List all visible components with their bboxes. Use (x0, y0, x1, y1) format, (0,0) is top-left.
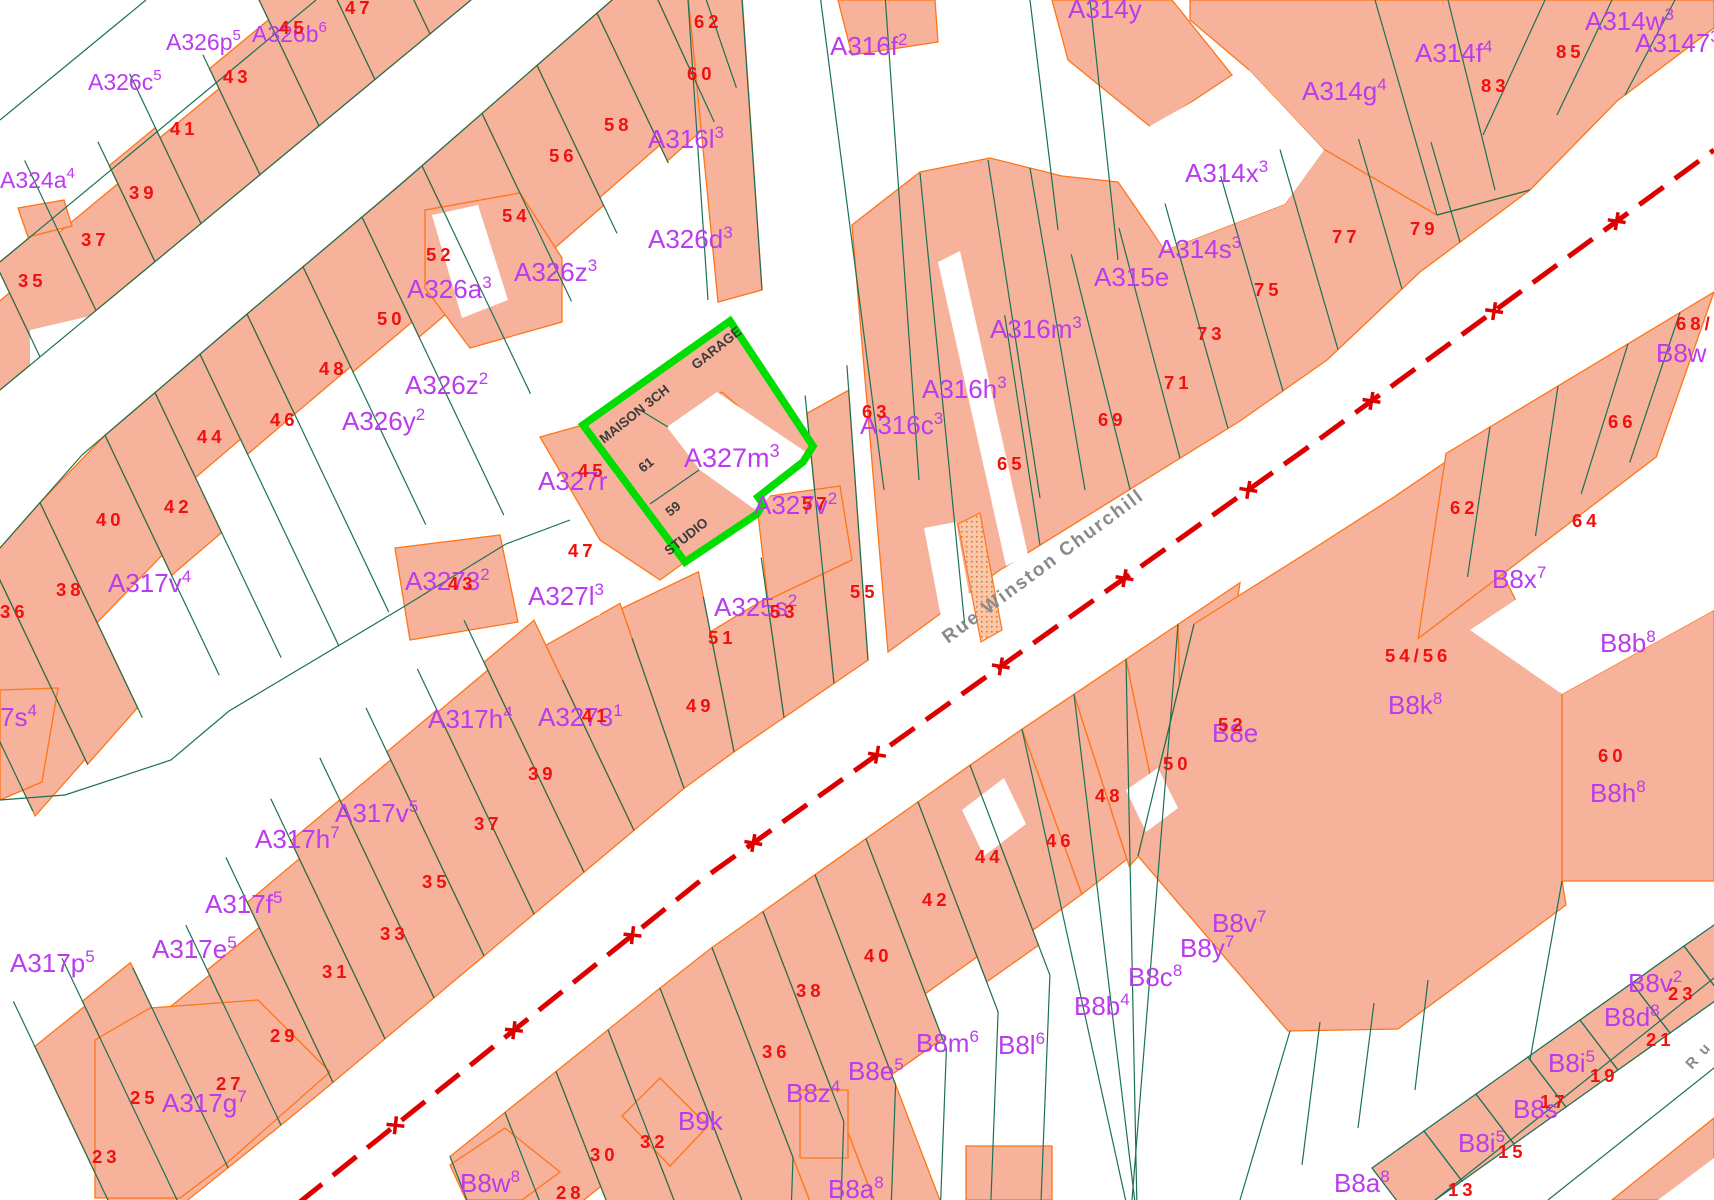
svg-text:A324a4: A324a4 (0, 165, 75, 193)
svg-text:A326z2: A326z2 (405, 369, 488, 400)
svg-text:66: 66 (1608, 411, 1637, 432)
svg-text:37: 37 (474, 813, 503, 834)
svg-text:15: 15 (1498, 1141, 1527, 1162)
svg-text:77: 77 (1332, 226, 1361, 247)
svg-text:56: 56 (549, 145, 578, 166)
svg-text:51: 51 (708, 627, 737, 648)
svg-text:A317v5: A317v5 (335, 797, 418, 828)
svg-text:50: 50 (377, 308, 406, 329)
svg-text:64: 64 (1572, 510, 1601, 531)
svg-text:A317e5: A317e5 (152, 933, 237, 964)
svg-text:46: 46 (270, 409, 299, 430)
svg-text:43: 43 (448, 573, 477, 594)
svg-text:44: 44 (975, 846, 1004, 867)
svg-text:54: 54 (502, 205, 531, 226)
svg-text:A326z3: A326z3 (514, 256, 597, 287)
svg-text:A327m3: A327m3 (684, 441, 780, 473)
svg-text:73: 73 (1197, 323, 1226, 344)
svg-text:A317f5: A317f5 (205, 888, 282, 919)
svg-text:A326a3: A326a3 (407, 273, 492, 304)
svg-text:A326y2: A326y2 (342, 405, 425, 436)
svg-text:A316h3: A316h3 (922, 373, 1007, 404)
svg-text:41: 41 (170, 118, 199, 139)
svg-text:B9k: B9k (678, 1106, 724, 1136)
svg-text:65: 65 (997, 453, 1026, 474)
svg-text:48: 48 (319, 358, 348, 379)
svg-text:35: 35 (422, 871, 451, 892)
svg-text:A317p5: A317p5 (10, 947, 95, 978)
svg-text:46: 46 (1046, 830, 1075, 851)
svg-text:30: 30 (590, 1144, 619, 1165)
svg-text:31: 31 (322, 961, 351, 982)
svg-text:17: 17 (1540, 1091, 1569, 1112)
svg-text:48: 48 (1095, 785, 1124, 806)
svg-text:A326c5: A326c5 (88, 67, 162, 95)
svg-text:58: 58 (604, 114, 633, 135)
svg-text:68/: 68/ (1676, 313, 1714, 334)
svg-text:55: 55 (850, 581, 879, 602)
svg-text:37: 37 (81, 229, 110, 250)
svg-text:A316m3: A316m3 (990, 313, 1082, 344)
svg-text:35: 35 (18, 270, 47, 291)
svg-text:71: 71 (1164, 372, 1193, 393)
svg-text:57: 57 (802, 493, 831, 514)
svg-text:36: 36 (762, 1041, 791, 1062)
svg-text:21: 21 (1646, 1029, 1675, 1050)
svg-text:13: 13 (1448, 1179, 1477, 1200)
svg-text:50: 50 (1163, 753, 1192, 774)
svg-text:A327l3: A327l3 (528, 580, 604, 611)
svg-text:39: 39 (528, 763, 557, 784)
svg-text:19: 19 (1590, 1065, 1619, 1086)
svg-text:A315e: A315e (1094, 262, 1169, 292)
svg-text:A31473: A31473 (1635, 27, 1714, 58)
svg-text:A317h4: A317h4 (428, 703, 513, 734)
svg-text:42: 42 (922, 889, 951, 910)
svg-text:60: 60 (1598, 745, 1627, 766)
svg-text:23: 23 (92, 1146, 121, 1167)
svg-text:42: 42 (164, 496, 193, 517)
svg-text:83: 83 (1481, 75, 1510, 96)
svg-text:25: 25 (130, 1087, 159, 1108)
svg-text:A326d3: A326d3 (648, 223, 733, 254)
svg-text:33: 33 (380, 923, 409, 944)
svg-text:79: 79 (1410, 218, 1439, 239)
svg-text:A316f2: A316f2 (830, 30, 907, 61)
svg-text:85: 85 (1556, 41, 1585, 62)
svg-text:52: 52 (1218, 714, 1247, 735)
svg-text:47: 47 (345, 0, 374, 18)
svg-text:41: 41 (582, 705, 611, 726)
svg-text:39: 39 (129, 182, 158, 203)
svg-text:A314y: A314y (1068, 0, 1142, 24)
svg-text:B8w: B8w (1656, 338, 1707, 368)
svg-text:40: 40 (96, 509, 125, 530)
svg-text:A316l3: A316l3 (648, 123, 724, 154)
svg-text:62: 62 (694, 11, 723, 32)
svg-text:40: 40 (864, 945, 893, 966)
svg-text:45: 45 (578, 460, 607, 481)
svg-text:A314g4: A314g4 (1302, 75, 1387, 106)
svg-text:32: 32 (640, 1131, 669, 1152)
svg-text:52: 52 (426, 244, 455, 265)
svg-text:23: 23 (1668, 983, 1697, 1004)
svg-text:27: 27 (216, 1073, 245, 1094)
svg-text:36: 36 (0, 601, 29, 622)
svg-text:47: 47 (568, 540, 597, 561)
svg-text:45: 45 (279, 17, 308, 38)
svg-text:43: 43 (223, 66, 252, 87)
svg-text:A326p5: A326p5 (166, 27, 241, 55)
svg-text:A314s3: A314s3 (1158, 233, 1241, 264)
svg-text:29: 29 (270, 1025, 299, 1046)
svg-text:44: 44 (197, 426, 226, 447)
svg-text:54/56: 54/56 (1385, 645, 1451, 666)
svg-text:60: 60 (687, 63, 716, 84)
svg-text:53: 53 (770, 601, 799, 622)
svg-text:49: 49 (686, 695, 715, 716)
svg-text:62: 62 (1450, 497, 1479, 518)
svg-text:A314f4: A314f4 (1415, 37, 1492, 68)
svg-text:28: 28 (556, 1182, 585, 1200)
svg-text:A314x3: A314x3 (1185, 157, 1268, 188)
svg-text:69: 69 (1098, 409, 1127, 430)
svg-text:38: 38 (796, 980, 825, 1001)
svg-text:63: 63 (862, 401, 891, 422)
svg-text:38: 38 (56, 579, 85, 600)
svg-text:75: 75 (1254, 279, 1283, 300)
svg-text:A317v4: A317v4 (108, 567, 191, 598)
svg-text:A317h7: A317h7 (255, 823, 340, 854)
